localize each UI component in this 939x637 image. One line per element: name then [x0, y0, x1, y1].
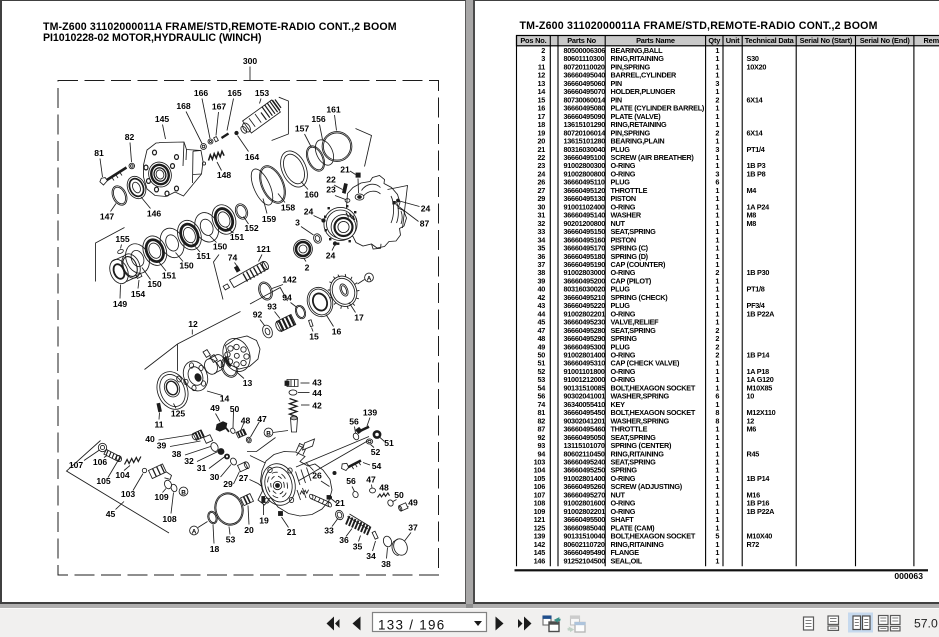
svg-text:48: 48	[379, 483, 389, 493]
svg-text:57.0: 57.0	[914, 617, 938, 631]
svg-text:155: 155	[115, 234, 130, 244]
svg-text:300: 300	[243, 56, 258, 66]
svg-text:23: 23	[326, 185, 336, 195]
svg-text:154: 154	[131, 289, 146, 299]
svg-text:PT1/8: PT1/8	[747, 285, 765, 294]
svg-text:1B P14: 1B P14	[747, 474, 771, 483]
svg-text:38: 38	[381, 559, 391, 569]
svg-text:56: 56	[349, 417, 359, 427]
svg-text:Technical Data: Technical Data	[745, 36, 795, 45]
svg-text:148: 148	[217, 170, 232, 180]
svg-text:146: 146	[147, 209, 162, 219]
svg-text:159: 159	[262, 214, 277, 224]
svg-text:1B P22A: 1B P22A	[747, 507, 776, 516]
svg-text:Pos No.: Pos No.	[520, 36, 546, 45]
svg-text:R72: R72	[747, 540, 760, 549]
svg-text:93: 93	[267, 302, 277, 312]
svg-text:165: 165	[227, 88, 242, 98]
svg-text:51: 51	[384, 438, 394, 448]
svg-text:Serial No (Start): Serial No (Start)	[800, 36, 853, 45]
svg-text:81: 81	[94, 148, 104, 158]
svg-text:35: 35	[353, 542, 363, 552]
svg-text:91252104500: 91252104500	[564, 556, 606, 565]
svg-text:160: 160	[304, 190, 319, 200]
svg-text:164: 164	[245, 152, 260, 162]
svg-text:20: 20	[244, 525, 254, 535]
svg-text:47: 47	[366, 475, 376, 485]
svg-text:19: 19	[259, 516, 269, 526]
svg-text:157: 157	[295, 124, 310, 134]
svg-text:16: 16	[332, 327, 342, 337]
svg-text:56: 56	[346, 476, 356, 486]
svg-text:150: 150	[213, 242, 228, 252]
svg-text:139: 139	[363, 408, 378, 418]
svg-text:49: 49	[210, 403, 220, 413]
svg-text:10X20: 10X20	[747, 62, 767, 71]
svg-text:40: 40	[145, 434, 155, 444]
svg-text:SEAL,OIL: SEAL,OIL	[611, 556, 643, 565]
svg-text:A: A	[367, 276, 372, 283]
svg-text:Qty: Qty	[708, 36, 721, 45]
svg-text:6X14: 6X14	[747, 128, 764, 137]
svg-text:74: 74	[228, 253, 238, 263]
svg-text:32: 32	[184, 456, 194, 466]
svg-text:26: 26	[312, 471, 322, 481]
svg-text:11: 11	[154, 420, 163, 430]
svg-text:43: 43	[312, 378, 322, 388]
svg-text:50: 50	[230, 404, 240, 414]
svg-text:47: 47	[257, 414, 267, 424]
svg-text:156: 156	[311, 114, 326, 124]
svg-text:33: 33	[324, 526, 334, 536]
svg-text:36: 36	[339, 535, 349, 545]
svg-text:B: B	[266, 431, 271, 438]
svg-text:17: 17	[354, 313, 364, 323]
svg-text:87: 87	[420, 219, 430, 229]
svg-text:82: 82	[125, 132, 135, 142]
svg-text:M4: M4	[747, 186, 758, 195]
svg-text:000063: 000063	[894, 571, 923, 581]
svg-text:2: 2	[305, 263, 310, 273]
svg-text:12: 12	[188, 319, 198, 329]
svg-text:106: 106	[93, 457, 108, 467]
svg-text:39: 39	[157, 441, 167, 451]
svg-text:92: 92	[253, 310, 263, 320]
svg-text:1B P30: 1B P30	[747, 268, 770, 277]
svg-text:PT1/4: PT1/4	[747, 145, 766, 154]
svg-text:34: 34	[366, 551, 376, 561]
svg-text:15: 15	[309, 332, 319, 342]
svg-text:22: 22	[326, 175, 336, 185]
svg-text:109: 109	[154, 492, 169, 502]
svg-text:151: 151	[230, 232, 245, 242]
svg-text:Parts No: Parts No	[567, 36, 596, 45]
svg-text:37: 37	[408, 523, 418, 533]
svg-text:158: 158	[281, 203, 296, 213]
svg-text:168: 168	[176, 101, 191, 111]
svg-text:21: 21	[287, 527, 297, 537]
svg-text:M6: M6	[747, 425, 757, 434]
svg-text:42: 42	[312, 401, 322, 411]
svg-text:107: 107	[69, 460, 84, 470]
svg-text:M8: M8	[747, 219, 757, 228]
svg-text:24: 24	[326, 251, 336, 261]
svg-text:6X14: 6X14	[747, 95, 764, 104]
svg-text:147: 147	[100, 212, 115, 222]
svg-text:153: 153	[255, 88, 270, 98]
svg-text:150: 150	[179, 261, 194, 271]
svg-text:18: 18	[210, 544, 220, 554]
svg-text:1B P22A: 1B P22A	[747, 309, 776, 318]
svg-text:161: 161	[326, 105, 341, 115]
svg-text:R45: R45	[747, 449, 760, 458]
svg-text:1B P8: 1B P8	[747, 169, 766, 178]
svg-text:Remark: Remark	[924, 36, 939, 45]
svg-text:121: 121	[256, 244, 271, 254]
svg-text:167: 167	[212, 102, 227, 112]
svg-text:Unit: Unit	[726, 36, 740, 45]
svg-text:38: 38	[172, 449, 182, 459]
svg-text:145: 145	[155, 114, 170, 124]
svg-text:146: 146	[534, 556, 546, 565]
svg-text:Serial No (End): Serial No (End)	[860, 36, 911, 45]
svg-text:13: 13	[243, 378, 253, 388]
svg-text:21: 21	[335, 498, 345, 508]
svg-text:24: 24	[304, 207, 314, 217]
svg-text:125: 125	[171, 409, 186, 419]
svg-text:Parts Name: Parts Name	[636, 36, 675, 45]
svg-text:3: 3	[295, 218, 300, 228]
svg-text:1: 1	[715, 556, 719, 565]
svg-text:49: 49	[408, 498, 418, 508]
svg-text:152: 152	[244, 223, 259, 233]
svg-text:45: 45	[106, 509, 116, 519]
svg-text:151: 151	[162, 271, 177, 281]
svg-text:53: 53	[226, 535, 236, 545]
svg-text:151: 151	[196, 251, 211, 261]
svg-text:108: 108	[162, 514, 177, 524]
svg-text:44: 44	[312, 388, 322, 398]
svg-text:150: 150	[147, 279, 162, 289]
svg-text:105: 105	[96, 476, 111, 486]
svg-text:10: 10	[747, 392, 755, 401]
svg-text:B: B	[181, 490, 186, 497]
svg-text:133 / 196: 133 / 196	[378, 617, 446, 632]
svg-text:48: 48	[241, 416, 251, 426]
svg-text:149: 149	[113, 299, 128, 309]
svg-text:29: 29	[223, 479, 233, 489]
svg-text:27: 27	[239, 473, 249, 483]
svg-text:142: 142	[282, 275, 297, 285]
svg-text:52: 52	[371, 447, 381, 457]
svg-text:30: 30	[210, 472, 220, 482]
svg-text:21: 21	[340, 165, 350, 175]
svg-text:104: 104	[115, 470, 130, 480]
svg-text:24: 24	[421, 204, 431, 214]
svg-text:166: 166	[194, 88, 209, 98]
svg-text:54: 54	[372, 461, 382, 471]
svg-text:50: 50	[394, 490, 404, 500]
svg-text:31: 31	[197, 463, 207, 473]
svg-text:A: A	[192, 529, 197, 536]
svg-text:1B P14: 1B P14	[747, 351, 771, 360]
